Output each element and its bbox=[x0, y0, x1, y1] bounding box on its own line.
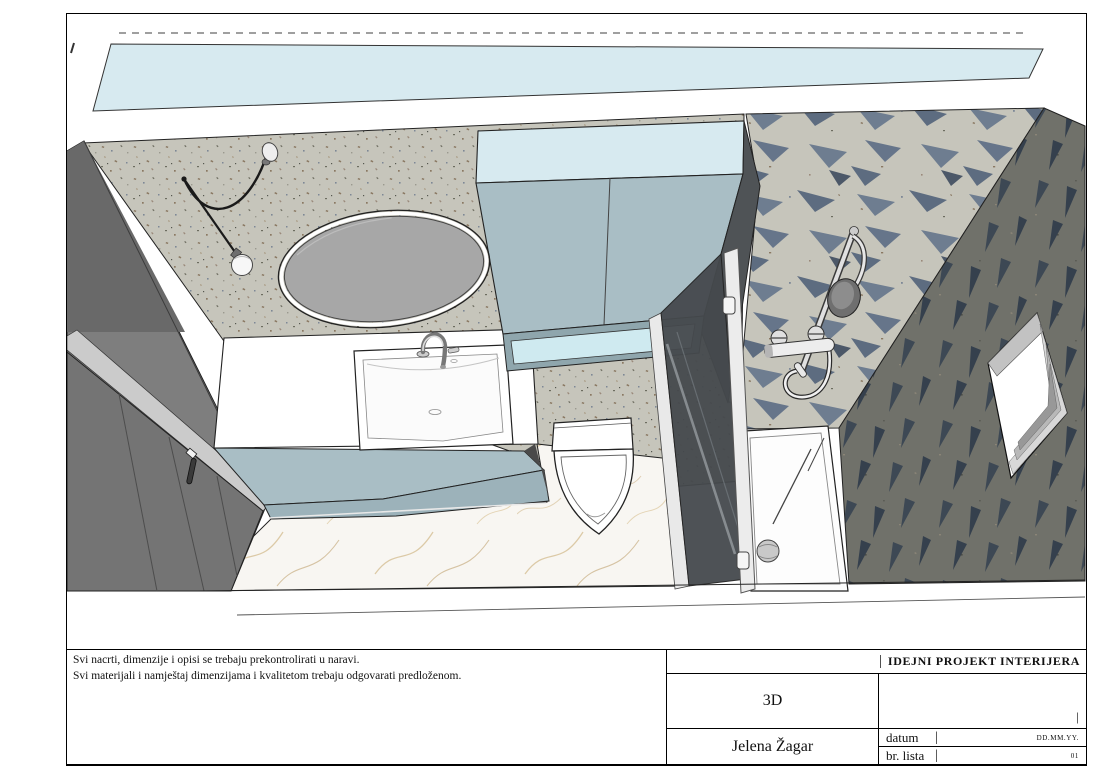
author-meta-row: Jelena Žagar datum | DD.MM.YY. br. lista… bbox=[667, 729, 1086, 764]
sheet-name-row: 3D | bbox=[667, 674, 1086, 729]
shower-drain bbox=[757, 540, 779, 562]
project-title: IDEJNI PROJEKT INTERIJERA bbox=[882, 654, 1086, 669]
author-name: Jelena Žagar bbox=[732, 738, 813, 756]
sheet-number-value: 01 bbox=[938, 752, 1079, 760]
note-line-1: Svi nacrti, dimenzije i opisi se trebaju… bbox=[73, 653, 660, 669]
sheet-name: 3D bbox=[763, 692, 783, 710]
corner-tick bbox=[71, 43, 74, 53]
project-title-row: | IDEJNI PROJEKT INTERIJERA bbox=[667, 650, 1086, 674]
date-value: DD.MM.YY. bbox=[938, 734, 1079, 742]
notes-box: Svi nacrti, dimenzije i opisi se trebaju… bbox=[67, 650, 667, 764]
note-line-2: Svi materijali i namještaj dimenzijama i… bbox=[73, 669, 660, 685]
sheet-name-cell: 3D bbox=[667, 674, 879, 728]
ceiling-strip bbox=[93, 44, 1043, 111]
date-label: datum bbox=[886, 730, 935, 746]
sheet-frame: Svi nacrti, dimenzije i opisi se trebaju… bbox=[66, 13, 1087, 766]
washbasin bbox=[354, 345, 513, 450]
title-block: Svi nacrti, dimenzije i opisi se trebaju… bbox=[67, 649, 1086, 764]
title-block-right: | IDEJNI PROJEKT INTERIJERA 3D | Jelena … bbox=[667, 650, 1086, 764]
separator-mark: | bbox=[1076, 709, 1079, 725]
vanity bbox=[214, 329, 549, 519]
shower-tray bbox=[744, 426, 848, 591]
meta-cell: datum | DD.MM.YY. br. lista | 01 bbox=[879, 729, 1086, 764]
revision-cell: | bbox=[879, 674, 1086, 728]
author-cell: Jelena Žagar bbox=[667, 729, 879, 764]
tall-cabinet-top bbox=[476, 121, 744, 183]
drawing-sheet: Svi nacrti, dimenzije i opisi se trebaju… bbox=[0, 0, 1100, 777]
sheet-number-row: br. lista | 01 bbox=[879, 746, 1086, 764]
date-row: datum | DD.MM.YY. bbox=[879, 729, 1086, 746]
bathroom-3d-view bbox=[67, 14, 1086, 649]
sheet-number-label: br. lista bbox=[886, 748, 935, 764]
